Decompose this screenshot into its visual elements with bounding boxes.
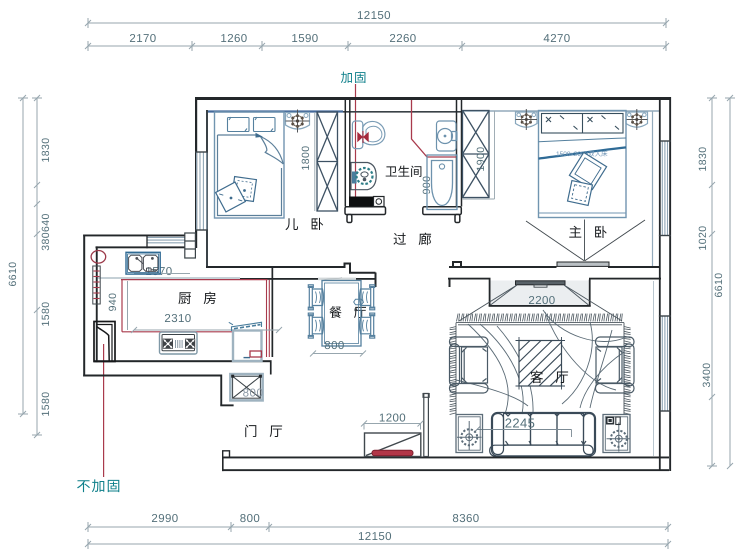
- svg-text:1830: 1830: [697, 147, 709, 172]
- svg-text:1800: 1800: [300, 146, 312, 171]
- svg-text:800: 800: [240, 513, 260, 525]
- svg-text:380640: 380640: [40, 213, 52, 250]
- svg-text:卫生间: 卫生间: [385, 165, 423, 179]
- svg-text:8360: 8360: [452, 513, 479, 525]
- svg-text:1020: 1020: [697, 226, 709, 251]
- svg-text:1590: 1590: [291, 33, 318, 45]
- svg-text:1200: 1200: [379, 413, 406, 425]
- svg-text:1260: 1260: [220, 33, 247, 45]
- svg-text:门 厅: 门 厅: [244, 424, 287, 439]
- svg-text:6610: 6610: [713, 273, 725, 298]
- svg-text:厨 房: 厨 房: [178, 291, 221, 306]
- svg-text:940: 940: [107, 293, 119, 312]
- svg-text:客 厅: 客 厅: [530, 370, 573, 385]
- svg-text:2245: 2245: [505, 416, 536, 431]
- svg-text:儿 卧: 儿 卧: [285, 217, 328, 232]
- svg-text:2170: 2170: [129, 33, 156, 45]
- svg-text:1580: 1580: [40, 392, 52, 417]
- svg-text:1830: 1830: [40, 138, 52, 163]
- svg-text:主 卧: 主 卧: [569, 225, 612, 240]
- svg-text:1900: 1900: [475, 147, 487, 172]
- svg-text:4270: 4270: [543, 33, 570, 45]
- svg-text:2310: 2310: [164, 313, 191, 325]
- svg-text:2990: 2990: [151, 513, 178, 525]
- svg-text:6610: 6610: [7, 262, 19, 287]
- svg-text:1580: 1580: [40, 302, 52, 327]
- svg-text:12150: 12150: [358, 531, 392, 543]
- svg-text:不加固: 不加固: [77, 478, 122, 494]
- svg-text:2260: 2260: [389, 33, 416, 45]
- svg-text:12150: 12150: [357, 10, 391, 22]
- svg-text:加固: 加固: [340, 71, 367, 85]
- svg-text:800: 800: [243, 388, 264, 400]
- svg-text:过 廊: 过 廊: [393, 232, 436, 247]
- svg-text:3400: 3400: [701, 363, 713, 388]
- svg-text:2200: 2200: [528, 295, 555, 307]
- svg-text:800: 800: [324, 340, 344, 352]
